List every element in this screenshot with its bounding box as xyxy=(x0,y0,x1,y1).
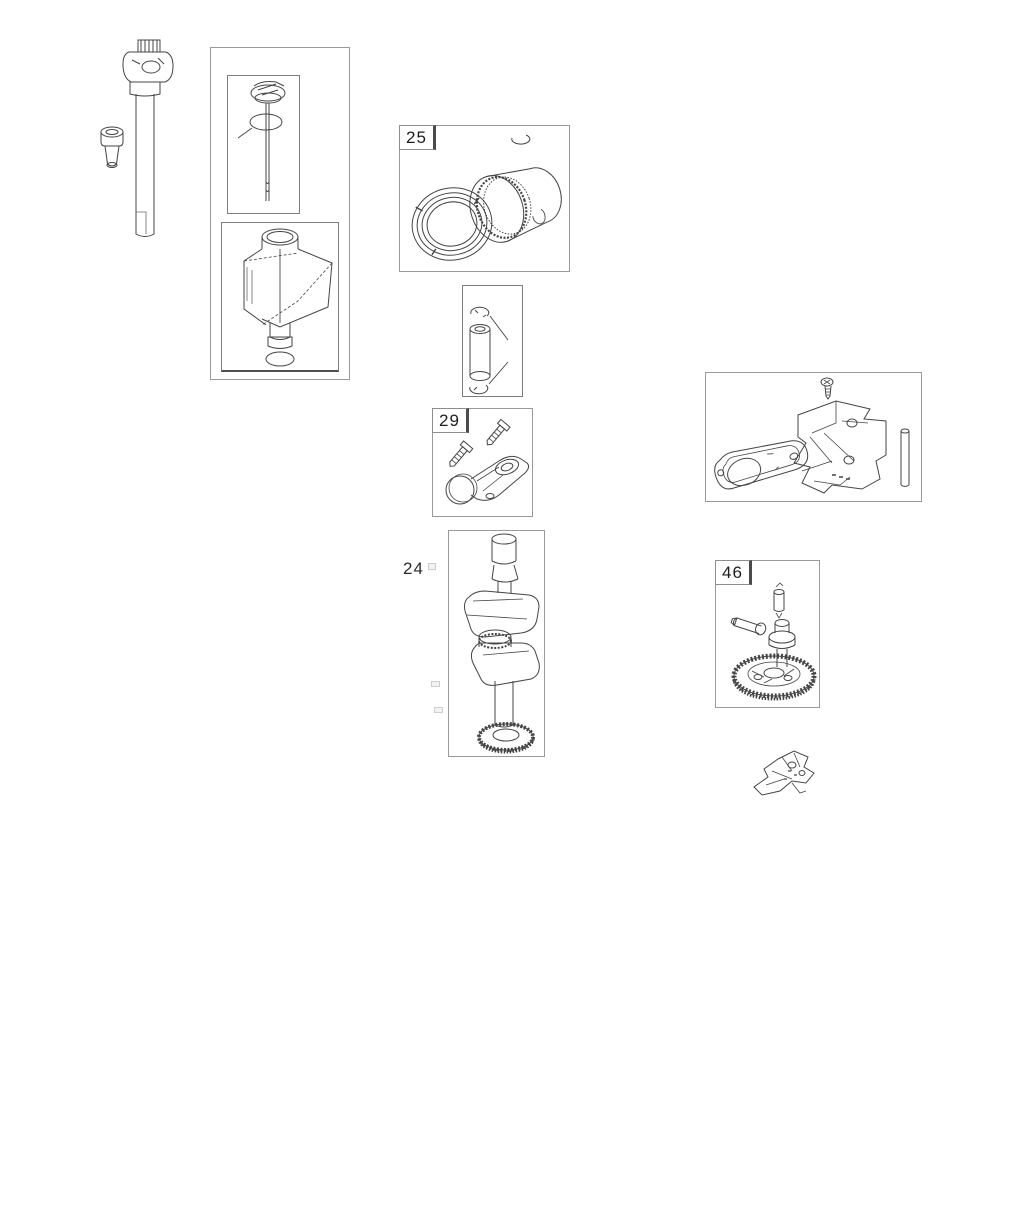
connecting-rod xyxy=(446,456,529,504)
oil-fill-group-box xyxy=(210,47,350,380)
piston-pin-box xyxy=(462,285,523,397)
governor-crank xyxy=(748,745,820,807)
piston xyxy=(462,156,569,249)
callout-25-label: 25 xyxy=(406,128,427,148)
piston-pin xyxy=(470,325,490,381)
dipstick-box xyxy=(227,75,300,214)
piston-ring-set xyxy=(405,180,498,267)
funnel-o-ring xyxy=(266,352,294,366)
callout-29: 29 xyxy=(432,408,469,433)
sump-gasket xyxy=(709,426,812,499)
sump-group xyxy=(706,373,921,501)
screw xyxy=(821,378,833,399)
dowel-pin xyxy=(901,429,909,487)
callout-24-label: 24 xyxy=(403,559,424,578)
retaining-clip-bottom xyxy=(470,385,488,394)
scan-speck xyxy=(431,681,440,687)
camshaft-bolt xyxy=(730,614,767,636)
callout-25: 25 xyxy=(399,125,436,150)
piston-box: 25 xyxy=(399,125,570,272)
parts-diagram-page: 25 xyxy=(0,0,1024,1216)
oil-fill-funnel-box xyxy=(221,222,339,372)
callout-29-label: 29 xyxy=(439,411,460,431)
oil-fill-funnel-bracket xyxy=(222,223,338,369)
oil-plug xyxy=(101,127,123,168)
camshaft-gear xyxy=(734,656,814,699)
tappet-plunger xyxy=(774,583,784,618)
retaining-clip-top xyxy=(471,307,489,317)
timing-gear xyxy=(479,724,533,752)
piston-pin-group xyxy=(463,286,522,396)
callout-24: 24 xyxy=(403,559,424,579)
scan-speck xyxy=(428,563,436,570)
scan-speck xyxy=(434,707,443,713)
oil-fill-cap-and-tube xyxy=(96,36,188,244)
crankshaft-box xyxy=(448,530,545,757)
callout-46: 46 xyxy=(715,560,752,585)
crankshaft xyxy=(449,531,544,756)
camshaft-box: 46 xyxy=(715,560,820,708)
sump-group-box xyxy=(705,372,922,502)
dipstick xyxy=(228,76,299,213)
callout-46-label: 46 xyxy=(722,563,743,583)
pin-retaining-clip xyxy=(512,135,530,144)
camshaft xyxy=(769,620,795,668)
mounting-bracket xyxy=(794,401,886,493)
connecting-rod-box: 29 xyxy=(432,408,533,517)
